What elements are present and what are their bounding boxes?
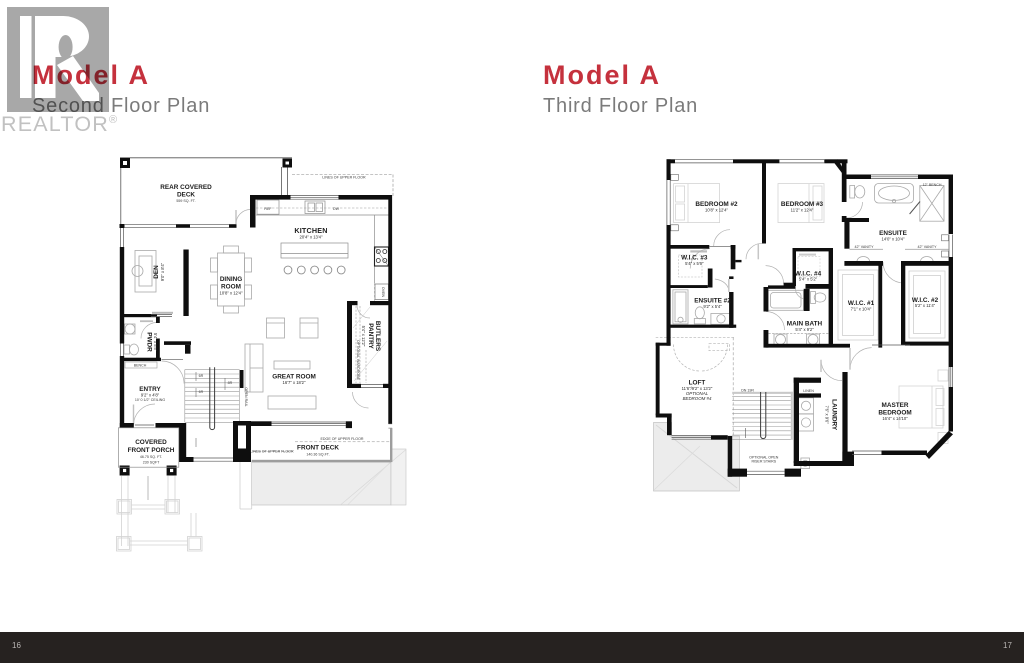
- svg-text:16'4" x 14'10": 16'4" x 14'10": [882, 416, 908, 421]
- svg-text:559 SQ. FT.: 559 SQ. FT.: [176, 199, 195, 203]
- svg-text:OPEN RAIL: OPEN RAIL: [244, 387, 248, 406]
- svg-text:RISER STAIRS: RISER STAIRS: [751, 460, 776, 464]
- svg-text:DECK: DECK: [177, 192, 195, 199]
- svg-text:EDGE OF UPPER FLOOR: EDGE OF UPPER FLOOR: [321, 437, 364, 441]
- svg-text:DINING: DINING: [220, 276, 242, 283]
- svg-text:DN 19R: DN 19R: [741, 388, 754, 392]
- svg-text:10'8" x 12'4": 10'8" x 12'4": [220, 291, 243, 296]
- svg-text:5'4" x 9'2": 5'4" x 9'2": [795, 327, 814, 332]
- svg-text:46.75 SQ. FT.: 46.75 SQ. FT.: [140, 455, 162, 459]
- svg-text:LINEN: LINEN: [803, 389, 814, 393]
- svg-text:8R: 8R: [228, 381, 233, 385]
- svg-text:PANTRY: PANTRY: [367, 323, 374, 349]
- svg-text:10'8" x 12'4": 10'8" x 12'4": [705, 207, 728, 212]
- svg-text:ROOM: ROOM: [221, 284, 241, 291]
- svg-text:5'2" x 11'4": 5'2" x 11'4": [915, 303, 936, 308]
- svg-text:BEDROOM #4: BEDROOM #4: [683, 396, 712, 401]
- svg-text:5'4" x 12'2": 5'4" x 12'2": [361, 326, 366, 347]
- svg-text:MASTER: MASTER: [882, 402, 909, 409]
- svg-text:FRONT PORCH: FRONT PORCH: [128, 447, 175, 454]
- svg-text:9'2" x 5'4": 9'2" x 5'4": [703, 304, 722, 309]
- svg-text:7'6" x 9'6": 7'6" x 9'6": [825, 405, 830, 424]
- svg-text:5'4" x 5'2": 5'4" x 5'2": [799, 277, 818, 282]
- svg-text:REF: REF: [264, 207, 272, 211]
- svg-text:7'1" x 10'4": 7'1" x 10'4": [851, 306, 872, 311]
- svg-text:LINES OF UPPER FLOOR: LINES OF UPPER FLOOR: [250, 450, 294, 454]
- svg-text:42" VANITY: 42" VANITY: [918, 245, 938, 249]
- svg-text:42" VANITY: 42" VANITY: [855, 245, 875, 249]
- svg-text:5'4" x 5'5": 5'4" x 5'5": [153, 333, 158, 352]
- svg-text:DEN: DEN: [153, 265, 160, 279]
- svg-text:OPTIONAL WARDROBE: OPTIONAL WARDROBE: [356, 340, 360, 381]
- svg-text:9'2" x 4'8": 9'2" x 4'8": [141, 393, 160, 398]
- svg-text:20'4" x 13'4": 20'4" x 13'4": [300, 235, 323, 240]
- svg-text:BUTLERS: BUTLERS: [374, 321, 381, 352]
- svg-text:140.36 SQ.FT.: 140.36 SQ.FT.: [306, 453, 329, 457]
- svg-text:BENCH: BENCH: [134, 363, 147, 367]
- svg-text:11'2" x 12'4": 11'2" x 12'4": [791, 207, 814, 212]
- svg-text:14'0" x 10'4": 14'0" x 10'4": [882, 236, 905, 241]
- svg-text:16'7" x 18'2": 16'7" x 18'2": [283, 380, 306, 385]
- svg-text:LINES OF UPPER FLOOR: LINES OF UPPER FLOOR: [322, 176, 366, 180]
- svg-text:6R: 6R: [199, 390, 204, 394]
- svg-text:9'0" x 8'4": 9'0" x 8'4": [160, 262, 165, 281]
- svg-text:10' 0 1/2" CEILING: 10' 0 1/2" CEILING: [135, 398, 166, 402]
- svg-text:12" BENCH: 12" BENCH: [923, 183, 942, 187]
- svg-text:OVEN: OVEN: [381, 287, 385, 298]
- svg-text:5'4" x 5'6": 5'4" x 5'6": [685, 261, 704, 266]
- svg-text:FRONT DECK: FRONT DECK: [297, 445, 339, 452]
- svg-text:REAR COVERED: REAR COVERED: [160, 184, 212, 191]
- svg-text:COVERED: COVERED: [135, 439, 167, 446]
- svg-text:6R: 6R: [199, 374, 204, 378]
- svg-text:LAUNDRY: LAUNDRY: [831, 399, 838, 431]
- svg-text:230 SQFT: 230 SQFT: [143, 461, 160, 465]
- svg-text:PWDR: PWDR: [146, 332, 153, 352]
- svg-text:DW: DW: [333, 207, 340, 211]
